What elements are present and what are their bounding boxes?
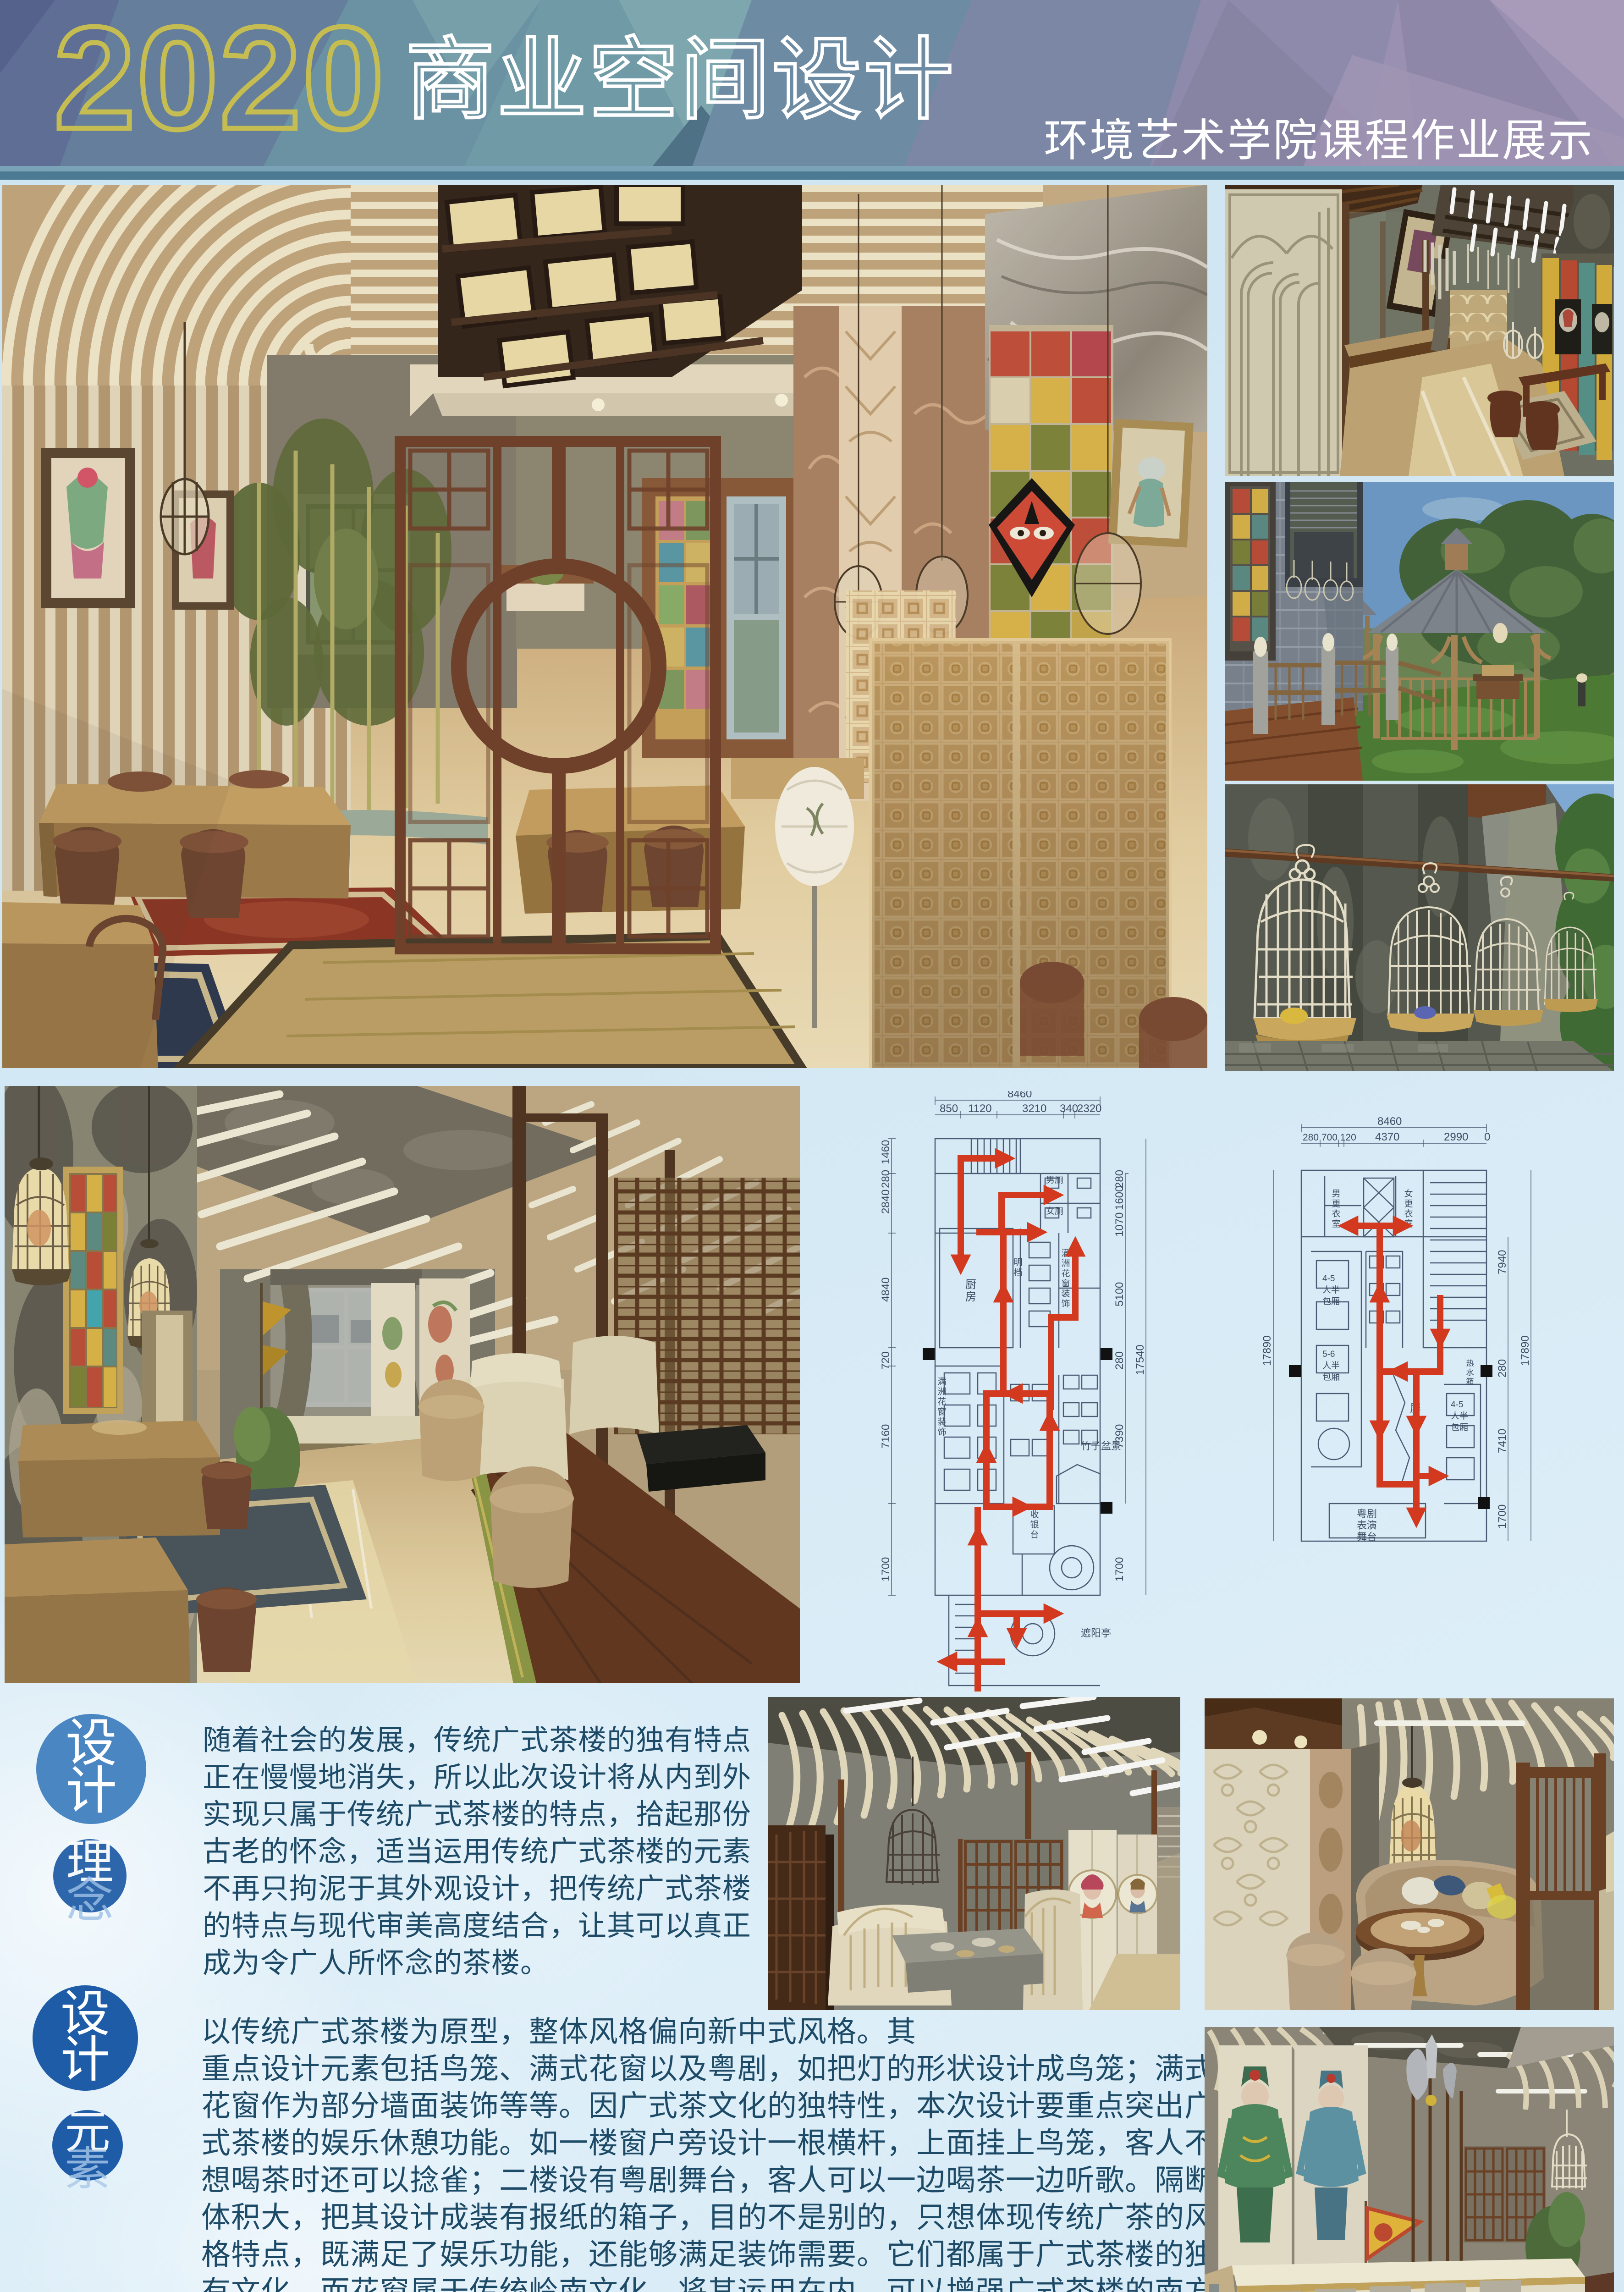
svg-text:280: 280 (1113, 1351, 1126, 1370)
svg-text:计: 计 (66, 1762, 117, 1819)
svg-text:280: 280 (880, 1170, 892, 1188)
svg-text:饰: 饰 (1061, 1299, 1070, 1309)
svg-text:1600: 1600 (1113, 1186, 1126, 1210)
svg-text:280: 280 (1113, 1170, 1126, 1188)
svg-text:窗: 窗 (937, 1407, 946, 1417)
svg-text:人半: 人半 (1451, 1411, 1468, 1421)
svg-text:洲: 洲 (1061, 1259, 1070, 1268)
svg-text:7940: 7940 (1496, 1250, 1508, 1274)
svg-text:8460: 8460 (1007, 1091, 1032, 1100)
svg-text:银: 银 (1030, 1520, 1039, 1530)
svg-text:4-5: 4-5 (1451, 1400, 1463, 1410)
svg-text:男厕: 男厕 (1046, 1175, 1063, 1185)
svg-text:档: 档 (1013, 1267, 1022, 1278)
svg-text:竹子盆景: 竹子盆景 (1081, 1440, 1121, 1452)
svg-text:人半: 人半 (1322, 1285, 1340, 1295)
svg-text:包厢: 包厢 (1451, 1422, 1468, 1432)
svg-text:1700: 1700 (880, 1557, 892, 1581)
svg-text:舞台: 舞台 (1357, 1531, 1377, 1543)
svg-text:5100: 5100 (1113, 1282, 1126, 1306)
svg-text:衣: 衣 (1404, 1209, 1413, 1219)
svg-text:5-6: 5-6 (1322, 1350, 1335, 1359)
svg-text:收: 收 (1030, 1510, 1039, 1520)
svg-text:饰: 饰 (937, 1427, 946, 1437)
svg-text:满: 满 (937, 1377, 946, 1387)
svg-text:厨: 厨 (965, 1278, 976, 1291)
svg-text:箱: 箱 (1466, 1377, 1474, 1386)
svg-text:满: 满 (1061, 1248, 1070, 1258)
svg-text:1700: 1700 (1113, 1557, 1126, 1581)
svg-text:包厢: 包厢 (1322, 1296, 1340, 1306)
svg-text:热: 热 (1466, 1359, 1474, 1368)
svg-text:1460: 1460 (880, 1140, 892, 1164)
svg-text:女厕: 女厕 (1046, 1206, 1063, 1216)
svg-text:女: 女 (1404, 1189, 1413, 1199)
svg-text:3210: 3210 (1022, 1102, 1046, 1115)
svg-text:素: 素 (65, 2143, 110, 2195)
svg-text:720: 720 (880, 1351, 892, 1370)
svg-text:男: 男 (1332, 1189, 1340, 1199)
svg-text:17890: 17890 (1519, 1335, 1531, 1366)
svg-text:1120: 1120 (968, 1102, 992, 1115)
svg-text:环境艺术学院课程作业展示: 环境艺术学院课程作业展示 (1044, 116, 1594, 165)
svg-text:房: 房 (965, 1291, 976, 1303)
svg-text:850: 850 (940, 1102, 958, 1115)
svg-text:2840: 2840 (880, 1190, 892, 1214)
svg-text:窗: 窗 (1061, 1278, 1070, 1289)
svg-text:7160: 7160 (880, 1424, 892, 1449)
svg-text:包厢: 包厢 (1322, 1372, 1340, 1382)
svg-text:2320: 2320 (1077, 1102, 1101, 1115)
svg-text:340: 340 (1060, 1102, 1078, 1115)
svg-text:4-5: 4-5 (1322, 1274, 1335, 1284)
svg-text:遮阳亭: 遮阳亭 (1081, 1627, 1111, 1639)
svg-text:室: 室 (1332, 1219, 1340, 1229)
svg-text:商业空间设计: 商业空间设计 (405, 30, 955, 130)
svg-text:2020: 2020 (54, 0, 385, 160)
svg-text:17890: 17890 (1261, 1335, 1273, 1366)
svg-text:更: 更 (1332, 1199, 1340, 1209)
svg-text:台: 台 (1030, 1530, 1039, 1540)
svg-text:念: 念 (66, 1874, 114, 1928)
svg-text:洲: 洲 (937, 1387, 946, 1397)
svg-text:7410: 7410 (1496, 1429, 1508, 1453)
svg-text:装: 装 (1061, 1289, 1070, 1299)
svg-text:2990: 2990 (1444, 1131, 1468, 1143)
svg-text:衣: 衣 (1332, 1209, 1340, 1219)
svg-text:粤剧: 粤剧 (1357, 1508, 1377, 1520)
svg-text:8460: 8460 (1377, 1115, 1402, 1128)
svg-text:花: 花 (1061, 1268, 1070, 1278)
svg-text:4370: 4370 (1375, 1131, 1399, 1143)
svg-text:装: 装 (937, 1417, 946, 1427)
svg-text:280: 280 (1496, 1359, 1508, 1377)
svg-text:水: 水 (1466, 1368, 1474, 1377)
svg-text:1700: 1700 (1496, 1504, 1508, 1529)
svg-text:人半: 人半 (1322, 1361, 1340, 1371)
svg-text:17540: 17540 (1134, 1344, 1146, 1375)
svg-text:更: 更 (1404, 1199, 1413, 1209)
svg-text:明: 明 (1013, 1258, 1022, 1267)
svg-text:花: 花 (937, 1397, 946, 1407)
svg-text:0: 0 (1484, 1131, 1490, 1143)
svg-text:280 700 120: 280 700 120 (1303, 1132, 1356, 1143)
svg-text:表演: 表演 (1357, 1520, 1377, 1531)
svg-text:1070: 1070 (1113, 1212, 1126, 1237)
svg-text:计: 计 (61, 2032, 110, 2087)
svg-text:4840: 4840 (880, 1278, 892, 1302)
